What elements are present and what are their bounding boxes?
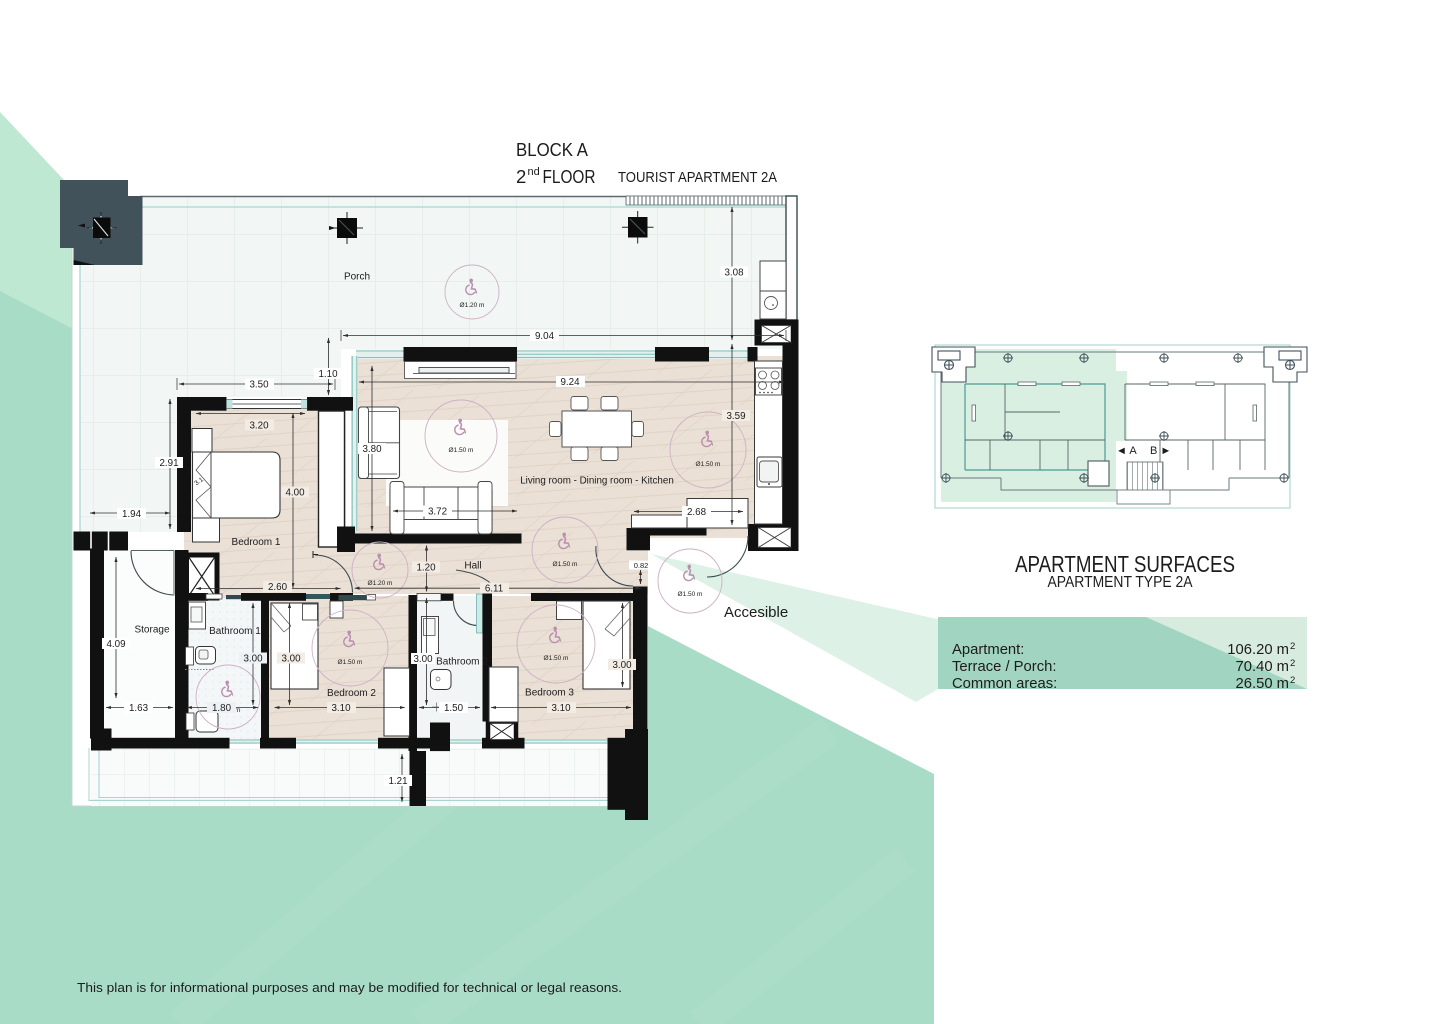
svg-text:TOURIST APARTMENT 2A: TOURIST APARTMENT 2A (618, 170, 777, 186)
svg-text:Common areas:: Common areas: (952, 676, 1057, 692)
svg-text:3.72: 3.72 (428, 507, 447, 518)
svg-text:Ø1.50 m: Ø1.50 m (449, 447, 474, 454)
svg-text:2.91: 2.91 (159, 458, 178, 469)
svg-text:6.11: 6.11 (485, 584, 503, 595)
svg-text:1.10: 1.10 (318, 369, 338, 380)
svg-text:3.10: 3.10 (551, 703, 571, 714)
svg-text:This plan is for informational: This plan is for informational purposes … (77, 980, 622, 995)
svg-text:Living room - Dining room - Ki: Living room - Dining room - Kitchen (520, 476, 674, 487)
svg-text:1.50: 1.50 (444, 703, 464, 714)
svg-text:Bedroom 2: Bedroom 2 (327, 688, 376, 699)
svg-text:3.80: 3.80 (362, 444, 382, 455)
svg-text:2.60: 2.60 (268, 582, 288, 593)
svg-text:1.94: 1.94 (122, 509, 142, 520)
svg-text:Ø1.50 m: Ø1.50 m (696, 461, 721, 468)
svg-text:Ø1.50 m: Ø1.50 m (544, 655, 569, 662)
svg-text:◄ A: ◄ A (1116, 445, 1137, 457)
svg-text:Ø1.20 m: Ø1.20 m (368, 580, 393, 587)
svg-text:3.59: 3.59 (726, 411, 745, 422)
svg-text:Porch: Porch (344, 272, 370, 283)
svg-text:3.00: 3.00 (413, 654, 433, 665)
svg-text:3.10: 3.10 (331, 703, 351, 714)
svg-text:1.20: 1.20 (416, 563, 436, 574)
svg-text:APARTMENT TYPE 2A: APARTMENT TYPE 2A (1048, 574, 1193, 591)
svg-text:3.50: 3.50 (249, 380, 269, 391)
svg-text:B ►: B ► (1150, 445, 1171, 457)
svg-text:Ø1.50 m: Ø1.50 m (338, 659, 363, 666)
svg-text:70.40 m: 70.40 m (1236, 659, 1289, 675)
svg-text:1.21: 1.21 (388, 776, 407, 787)
svg-text:2: 2 (1290, 675, 1295, 686)
svg-text:0.82: 0.82 (634, 561, 649, 570)
svg-text:Bathroom 1: Bathroom 1 (209, 626, 261, 637)
svg-text:3.00: 3.00 (281, 654, 301, 665)
svg-text:9.24: 9.24 (560, 377, 580, 388)
svg-text:3.00: 3.00 (612, 660, 632, 671)
svg-text:Accesible: Accesible (724, 604, 788, 621)
svg-text:2.68: 2.68 (687, 507, 707, 518)
svg-text:1.63: 1.63 (129, 703, 149, 714)
svg-text:FLOOR: FLOOR (543, 166, 596, 187)
svg-text:Storage: Storage (134, 625, 169, 636)
svg-text:2: 2 (1290, 641, 1295, 652)
svg-text:Bedroom 1: Bedroom 1 (232, 537, 281, 548)
svg-text:Ø1.50 m: Ø1.50 m (553, 561, 578, 568)
svg-text:9.04: 9.04 (535, 331, 555, 342)
svg-text:Ø1.20 m: Ø1.20 m (460, 302, 485, 309)
svg-text:Hall: Hall (464, 561, 481, 572)
svg-text:3.20: 3.20 (249, 421, 269, 432)
svg-text:Bathroom 2: Bathroom 2 (436, 657, 488, 668)
svg-text:3.08: 3.08 (724, 268, 744, 279)
svg-text:3.00: 3.00 (243, 654, 263, 665)
svg-text:2: 2 (1290, 658, 1295, 669)
svg-text:nd: nd (528, 166, 540, 178)
svg-text:Apartment:: Apartment: (952, 642, 1024, 658)
svg-text:26.50 m: 26.50 m (1236, 676, 1289, 692)
svg-text:Ø1.50 m: Ø1.50 m (678, 591, 703, 598)
svg-text:2: 2 (516, 166, 526, 187)
svg-text:4.09: 4.09 (106, 639, 125, 650)
svg-text:1.80: 1.80 (212, 703, 232, 714)
svg-text:Terrace / Porch:: Terrace / Porch: (952, 659, 1056, 675)
svg-text:4.00: 4.00 (285, 488, 305, 499)
svg-text:106.20 m: 106.20 m (1227, 642, 1289, 658)
svg-text:BLOCK A: BLOCK A (516, 139, 589, 160)
svg-text:Bedroom 3: Bedroom 3 (525, 688, 574, 699)
